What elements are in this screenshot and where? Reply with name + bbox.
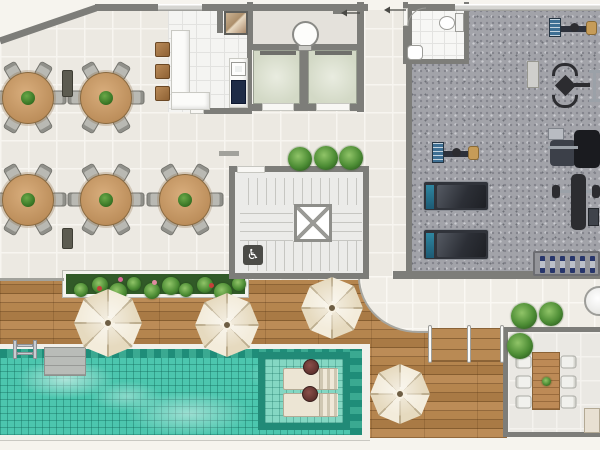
bar-stool — [155, 64, 170, 79]
table-centerpiece — [178, 193, 192, 207]
bar-stool — [155, 42, 170, 57]
planter-plant — [127, 277, 141, 291]
kitchen-counter — [171, 92, 210, 110]
dumbbell-rack — [533, 251, 600, 276]
parasol-pole — [395, 389, 405, 399]
garbage-chute — [292, 21, 319, 48]
planter-plant — [144, 283, 160, 299]
kitchen-sink — [231, 62, 246, 76]
elevator-sill — [260, 51, 296, 55]
bike-pedals — [570, 23, 579, 32]
stair-tread-band — [248, 178, 360, 205]
weight-plate — [592, 185, 600, 198]
pool-walkway — [358, 276, 600, 333]
table-centerpiece — [542, 377, 551, 386]
parasol-pole — [103, 318, 113, 328]
wall — [300, 50, 308, 106]
parasol — [195, 293, 259, 357]
wall-shelf — [333, 9, 347, 14]
potted-plant — [314, 146, 338, 170]
bar-stool — [155, 86, 170, 101]
exercise-bike — [549, 17, 598, 40]
treadmill-belt — [437, 233, 486, 257]
dumbbell — [590, 256, 595, 273]
window — [455, 4, 600, 11]
flower — [118, 277, 123, 282]
dumbbell — [570, 256, 575, 273]
accessible-badge: ♿ — [243, 245, 263, 265]
planter-plant — [232, 277, 246, 291]
handrail — [428, 325, 432, 363]
planter-plant — [179, 283, 193, 297]
wall — [229, 166, 235, 279]
terrace-chair — [561, 356, 577, 369]
machine-center — [555, 75, 576, 96]
potted-plant — [511, 303, 537, 329]
parasol-pole — [327, 303, 337, 313]
pool-ladder — [13, 340, 37, 359]
wall — [247, 104, 263, 111]
parasol — [74, 289, 142, 357]
treadmill-console — [426, 233, 434, 258]
bar-cap — [589, 70, 600, 73]
wall — [95, 4, 158, 11]
table-centerpiece — [99, 193, 113, 207]
wheelchair-icon: ♿ — [247, 248, 260, 262]
leg-press-machine — [548, 126, 600, 168]
cooktop — [231, 80, 246, 104]
lounger-side-table — [302, 386, 318, 402]
toilet — [439, 16, 455, 30]
machine-arm — [552, 95, 578, 108]
flower — [209, 283, 214, 288]
potted-plant — [288, 147, 312, 171]
gym-mat — [527, 61, 539, 88]
wall — [217, 10, 223, 33]
potted-plant — [339, 146, 363, 170]
door-opening — [237, 166, 265, 173]
elevator-door — [262, 103, 294, 111]
table-centerpiece — [21, 193, 35, 207]
weight-plate — [552, 185, 560, 198]
barbell-rack — [589, 70, 600, 102]
service-table — [62, 70, 73, 97]
wall — [357, 2, 364, 112]
stair-tread-band — [248, 241, 360, 271]
bike-console — [549, 18, 561, 37]
wall — [464, 2, 469, 64]
elevator-door — [316, 103, 350, 111]
ladder-rung — [17, 352, 33, 355]
lounger-backrest — [319, 394, 338, 416]
dumbbell — [540, 256, 545, 273]
lounger-side-table — [303, 359, 319, 375]
planter-plant — [74, 283, 88, 297]
machine-bar — [574, 83, 590, 87]
wall — [294, 104, 316, 111]
door-opening — [403, 8, 408, 26]
parasol — [301, 277, 363, 339]
ladder-rung — [17, 344, 33, 347]
table-centerpiece — [99, 91, 113, 105]
elevator-cab — [308, 50, 357, 104]
wall — [0, 278, 64, 281]
planter-plant — [162, 277, 180, 295]
floor-plan: ♿ — [0, 0, 600, 450]
ladder-rail — [13, 340, 17, 359]
terrace-chair — [561, 396, 577, 409]
bench-press-station — [552, 174, 600, 230]
stair-shaft — [294, 204, 332, 242]
machine-bar — [548, 146, 578, 149]
treadmill-console — [426, 185, 434, 209]
table-centerpiece — [21, 91, 35, 105]
flower — [152, 280, 157, 285]
terrace-chair — [516, 396, 532, 409]
flower — [97, 286, 102, 291]
dumbbell — [550, 256, 555, 273]
multi-gym-machine — [546, 63, 590, 109]
potted-plant — [507, 333, 533, 359]
wall — [350, 104, 364, 111]
machine-seat — [548, 128, 564, 140]
pool-tile-border — [350, 349, 362, 435]
potted-plant — [539, 302, 563, 326]
elevator-sill — [315, 51, 352, 55]
wall — [204, 108, 252, 114]
weight-stack — [588, 208, 599, 226]
terrace-counter — [584, 408, 600, 433]
treadmill — [423, 229, 489, 260]
bench — [571, 174, 586, 230]
elevator-cab — [253, 50, 300, 104]
dumbbell — [560, 256, 565, 273]
bar-cap — [589, 99, 600, 102]
service-table — [62, 228, 73, 249]
machine-base — [550, 140, 576, 166]
treadmill — [423, 181, 489, 211]
machine-pad — [574, 130, 600, 168]
terrace-chair — [516, 376, 532, 389]
stair-tread-band — [332, 205, 362, 241]
bike-seat — [586, 21, 597, 35]
bike-pedals — [452, 148, 461, 157]
exercise-bike — [432, 141, 480, 166]
wall — [229, 273, 369, 279]
kitchen-island-granite — [224, 11, 248, 35]
dumbbell — [580, 256, 585, 273]
window — [158, 4, 202, 11]
bike-seat — [468, 146, 479, 160]
wall — [363, 166, 369, 279]
bike-console — [432, 142, 444, 163]
wall — [219, 151, 239, 156]
terrace-chair — [561, 376, 577, 389]
ladder-rail — [33, 340, 37, 359]
parasol — [370, 364, 430, 424]
toilet-tank — [455, 13, 464, 32]
handrail — [467, 325, 471, 363]
lounger-backrest — [319, 369, 338, 389]
bathroom-sink — [407, 45, 423, 60]
treadmill-belt — [437, 185, 486, 208]
bar — [593, 70, 596, 102]
stair-tread-band — [240, 205, 293, 241]
handrail — [500, 325, 504, 363]
pool-step-platform — [44, 347, 86, 376]
parasol-pole — [222, 320, 232, 330]
chute-hatch — [298, 45, 312, 51]
wall — [406, 4, 455, 11]
